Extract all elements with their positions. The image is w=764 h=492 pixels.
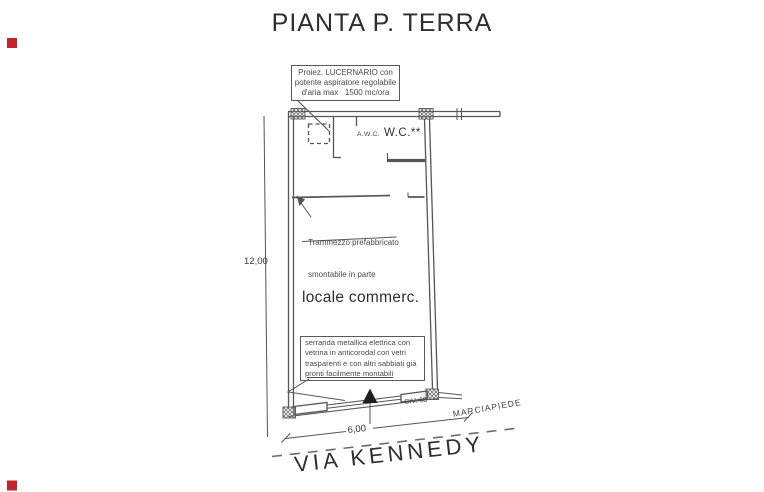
red-marker-bottom xyxy=(7,481,17,491)
scanned-floorplan-page: PIANTA P. TERRA Proiez. LUCERNARIO con p… xyxy=(0,0,764,492)
skylight-note-line3: d'aria max 1500 mc/ora xyxy=(302,88,390,98)
skylight-dashed-outline xyxy=(309,124,330,144)
height-dimension-label: 12,00 xyxy=(244,256,268,267)
shutter-note-line3: trasparenti e con altri sabbiati già xyxy=(305,359,424,369)
shutter-note-line2: vetrina in anticorodal con vetri xyxy=(305,348,424,358)
shutter-note-line1: serranda metallica elettrica con xyxy=(305,338,424,348)
page-title: PIANTA P. TERRA xyxy=(0,9,764,38)
shutter-leader-line xyxy=(288,379,345,401)
skylight-note-line2: potente aspiratore regolabile xyxy=(295,78,396,88)
skylight-note-box: Proiez. LUCERNARIO con potente aspirator… xyxy=(291,65,400,101)
skylight-note-line1: Proiez. LUCERNARIO con xyxy=(298,68,393,78)
shutter-note-line4: pronti facilmente montabili xyxy=(305,369,424,379)
left-wall xyxy=(289,112,294,409)
top-wall xyxy=(288,108,500,120)
commercial-room-label: locale commerc. xyxy=(302,289,419,307)
partition-note-line1: Trammezzo prefabbricato xyxy=(308,238,399,249)
right-wall xyxy=(425,119,438,389)
partition-note-line2: smontabile in parte xyxy=(308,270,399,281)
awc-label: A.W.C. xyxy=(357,131,380,138)
shutter-note-box: serranda metallica elettrica con vetrina… xyxy=(300,336,425,381)
wc-label: W.C.** xyxy=(384,127,421,139)
red-marker-top xyxy=(7,38,17,48)
width-dimension-label: 6,00 xyxy=(347,423,367,436)
tramezzo-partition xyxy=(292,193,425,198)
